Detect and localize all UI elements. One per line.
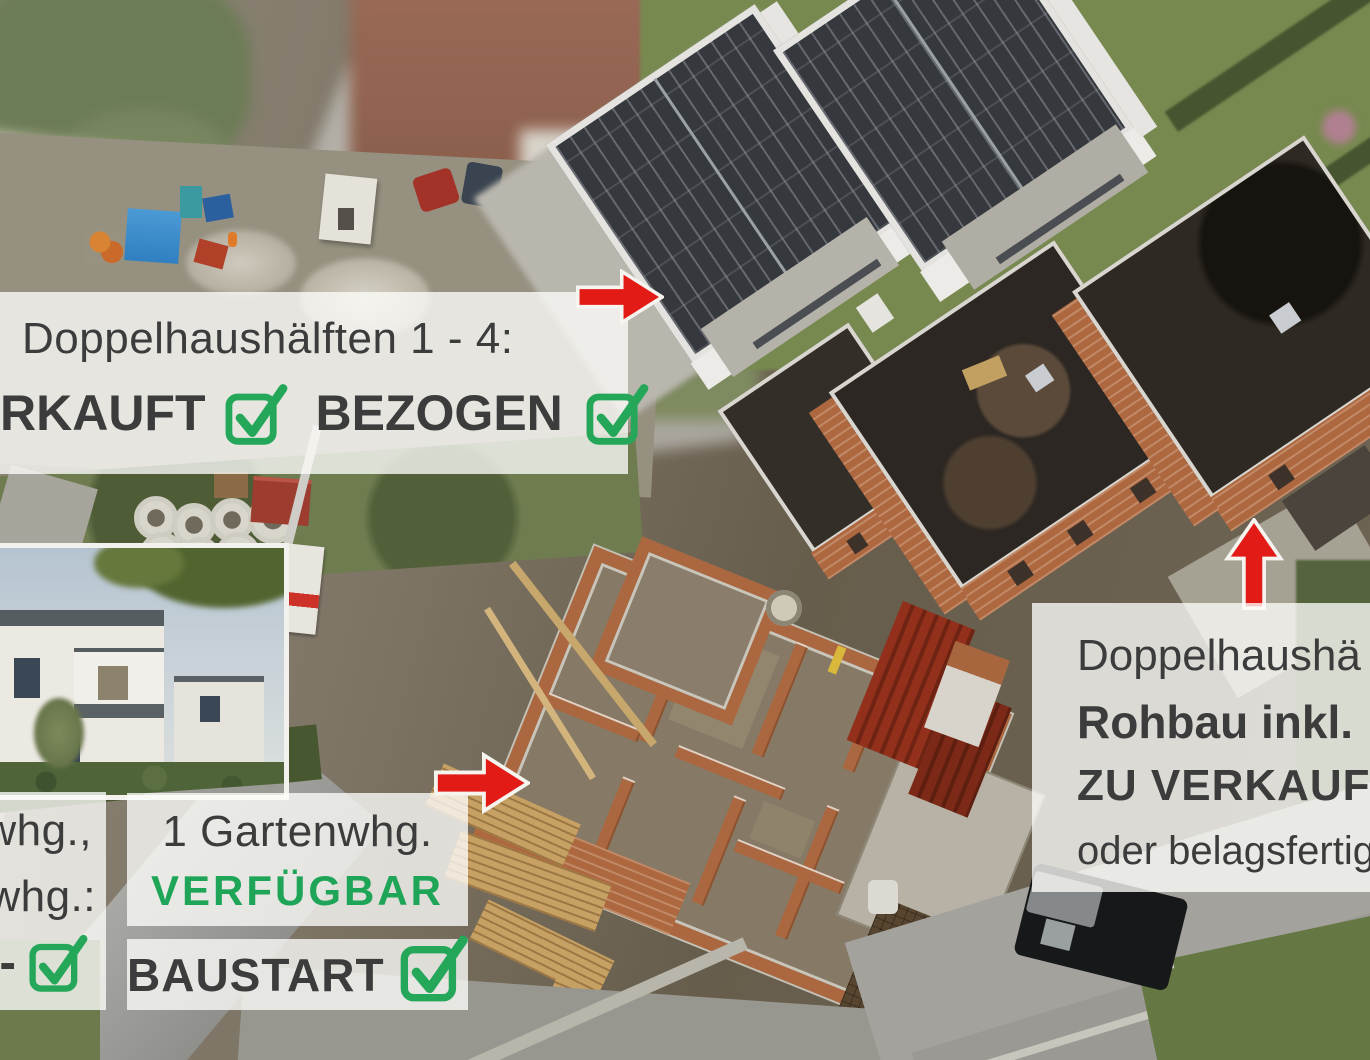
checked-checkbox-icon: [399, 930, 468, 1004]
flower-bush: [1322, 110, 1356, 144]
sale-line-3: ZU VERKAUFEN: [1077, 761, 1370, 811]
checked-checkbox-icon: [585, 379, 649, 447]
render-roof-band: [0, 610, 164, 626]
portable-toilet: [180, 186, 202, 218]
render-tree: [34, 698, 84, 768]
units-line-1: whg.,: [0, 806, 92, 856]
arrow-up-icon: [1216, 518, 1292, 610]
units-check-row: -: [0, 930, 88, 994]
sale-line-1: Doppelhaushä: [1077, 631, 1370, 681]
sale-line-2: Rohbau inkl.: [1077, 695, 1370, 749]
round-tank: [766, 590, 802, 626]
available-box: 1 Gartenwhg. VERFÜGBAR: [127, 793, 468, 926]
van-windshield: [1040, 919, 1075, 951]
interior-wall: [674, 745, 785, 800]
render-window: [14, 658, 40, 698]
status-box-title: Doppelhaushälften 1 - 4:: [22, 314, 513, 364]
aerial-construction-photo: Doppelhaushälften 1 - 4: RKAUFT BEZOGEN: [0, 0, 1370, 1060]
worker: [228, 232, 237, 247]
sale-box: Doppelhaushä Rohbau inkl. ZU VERKAUFEN o…: [1032, 603, 1370, 892]
baustart-label: BAUSTART: [127, 948, 385, 1002]
units-line-2: whg.:: [0, 872, 96, 922]
checked-checkbox-icon: [224, 379, 288, 447]
render-window: [200, 696, 220, 722]
orange-equipment: [84, 226, 124, 266]
wood-box: [214, 472, 248, 498]
baustart-box: BAUSTART: [127, 939, 468, 1010]
available-unit-label: 1 Gartenwhg.: [127, 807, 468, 857]
baustart-row: BAUSTART: [127, 939, 468, 1010]
checked-checkbox-icon: [28, 930, 88, 994]
status-row: RKAUFT BEZOGEN: [0, 378, 649, 448]
render-window: [98, 666, 128, 700]
container-door: [338, 208, 354, 230]
status-sold-label: RKAUFT: [0, 384, 206, 442]
available-status-label: VERFÜGBAR: [127, 867, 468, 915]
blue-container: [124, 208, 181, 264]
rendering-inset-photo: [0, 543, 289, 800]
blue-machine: [202, 194, 234, 222]
arrow-right-icon: [434, 752, 530, 814]
sale-line-4: oder belagsfertig: [1077, 829, 1370, 874]
status-occupied-label: BEZOGEN: [316, 384, 563, 442]
cement-bag: [868, 880, 898, 914]
yellow-post: [828, 645, 847, 674]
units-box: whg., whg.: -: [0, 792, 106, 1010]
arrow-right-icon: [576, 269, 664, 325]
status-box-houses-1-4: Doppelhaushälften 1 - 4: RKAUFT BEZOGEN: [0, 292, 628, 474]
units-dash: -: [0, 933, 16, 991]
